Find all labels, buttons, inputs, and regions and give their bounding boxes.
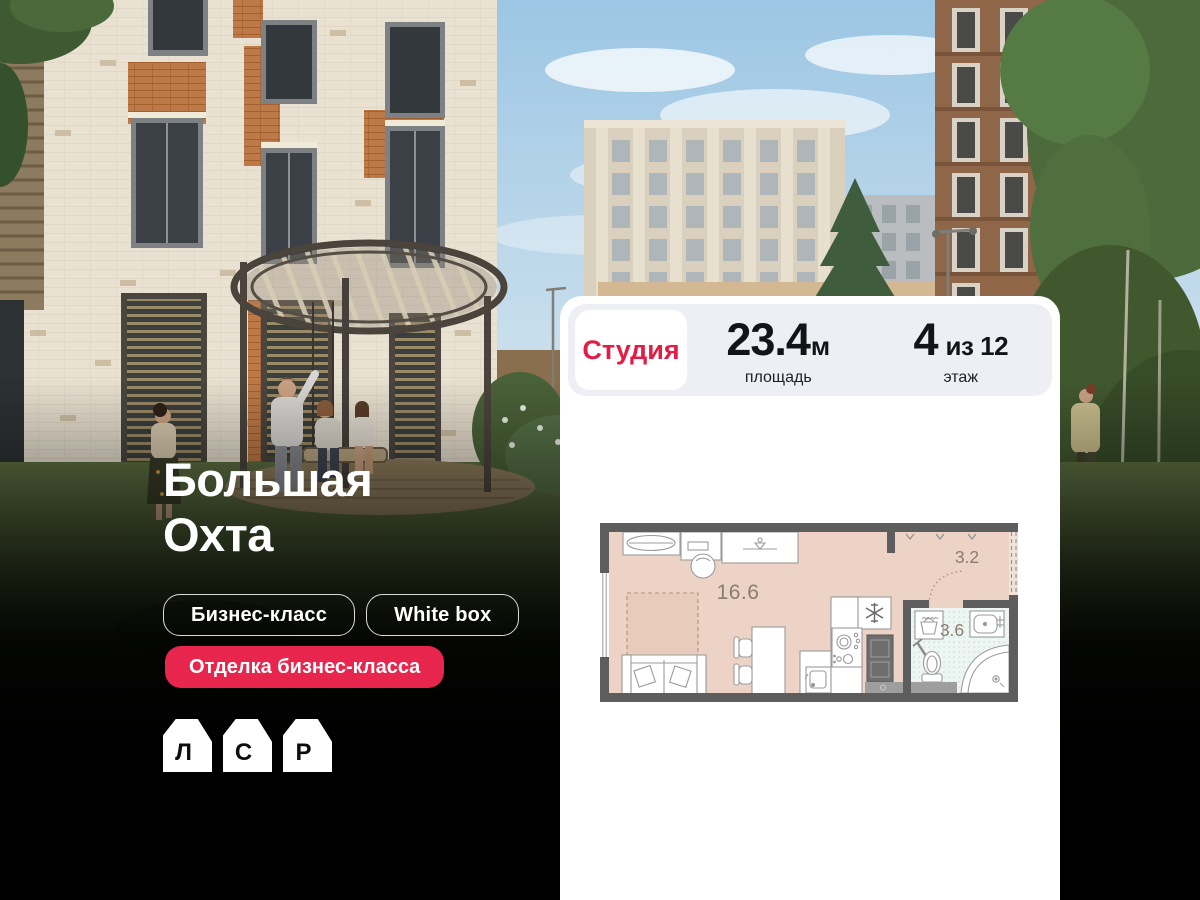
project-title-line2: Охта: [163, 507, 372, 562]
toilet-icon: [922, 652, 942, 683]
floor-value: 4: [913, 314, 937, 366]
tags-row: Бизнес-класс White box: [163, 594, 519, 636]
floor-stat: 4 из 12 этаж: [870, 314, 1053, 387]
apartment-card[interactable]: Студия 23.4 м площадь 4 из 12 этаж: [560, 296, 1060, 900]
sofa-icon: [622, 655, 706, 695]
hall-area-label: 3.2: [955, 547, 979, 567]
logo-letter: Р: [295, 739, 311, 767]
tag-label: Отделка бизнес-класса: [189, 656, 420, 679]
laundry-basket-icon: [915, 611, 943, 639]
room-area-label: 16.6: [717, 581, 760, 604]
washbasin-icon: [970, 611, 1004, 637]
tag-white-box: White box: [366, 594, 519, 636]
promo-banner: Большая Охта Бизнес-класс White box Отде…: [0, 0, 1200, 900]
card-header: Студия 23.4 м площадь 4 из 12 этаж: [568, 304, 1052, 396]
logo-tile-s: С: [223, 719, 272, 772]
tag-label: Бизнес-класс: [191, 604, 327, 627]
fridge-icon: [858, 597, 891, 629]
bath-area-label: 3.6: [940, 620, 964, 640]
lsr-logo: Л С Р: [163, 719, 332, 772]
floor-of-total: из 12: [945, 331, 1008, 362]
floor-plan: 16.6 3.2 3.6: [600, 523, 1018, 702]
area-unit: м: [811, 331, 830, 362]
logo-tile-r: Р: [283, 719, 332, 772]
area-stat: 23.4 м площадь: [687, 314, 870, 387]
floor-caption: этаж: [943, 369, 978, 387]
entrance-door: [1009, 532, 1018, 595]
logo-tile-l: Л: [163, 719, 212, 772]
tag-finishing: Отделка бизнес-класса: [165, 646, 444, 688]
area-value: 23.4: [726, 314, 810, 366]
wardrobe-icon: [722, 532, 798, 563]
hob-icon: [832, 628, 862, 667]
tag-label: White box: [394, 604, 491, 627]
logo-letter: Л: [175, 739, 192, 767]
tag-business-class: Бизнес-класс: [163, 594, 355, 636]
logo-letter: С: [235, 739, 252, 767]
bed-outline: [627, 593, 698, 655]
project-title-line1: Большая: [163, 452, 372, 507]
apartment-type-badge: Студия: [575, 310, 687, 390]
console-icon: [623, 532, 680, 555]
apartment-type-label: Студия: [582, 335, 679, 366]
window-icon: [600, 573, 609, 657]
area-caption: площадь: [745, 369, 812, 387]
project-title: Большая Охта: [163, 452, 372, 562]
